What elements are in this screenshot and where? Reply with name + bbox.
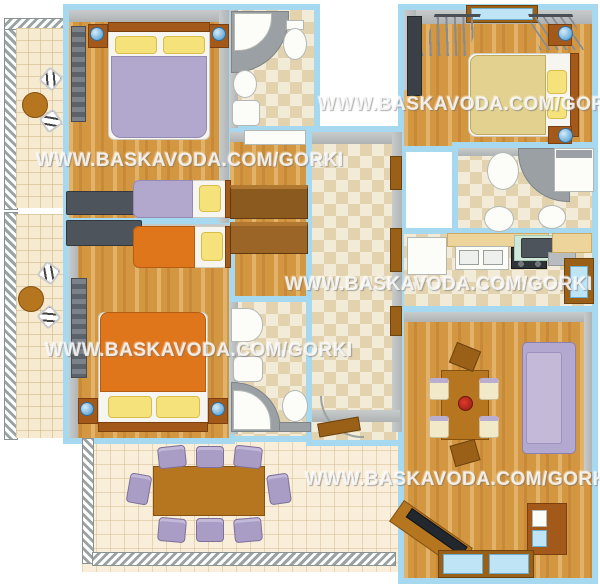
terrace-chair [233, 517, 263, 543]
terrace-railing-left [82, 438, 94, 564]
door [390, 156, 402, 190]
bed-blanket [111, 56, 207, 138]
toilet [282, 390, 308, 422]
terrace-chair [157, 517, 187, 543]
apartment-floor-plan: WWW.BASKAVODA.COM/GORKI WWW.BASKAVODA.CO… [0, 0, 600, 587]
dining-chair [429, 378, 449, 400]
toilet [283, 28, 307, 60]
sink-basin [459, 250, 479, 265]
terrace-chair [157, 445, 187, 470]
bedside-lamp [211, 402, 225, 416]
watermark: WWW.BASKAVODA.COM/GORKI [36, 150, 344, 172]
kitchen-cabinet [552, 233, 592, 253]
sink [232, 100, 260, 126]
terrace-railing-bottom [92, 552, 396, 566]
wall-shading [584, 312, 592, 472]
sofa-seat [526, 352, 562, 444]
pillow [199, 185, 221, 212]
terrace-dining-table [153, 466, 265, 516]
desk [66, 220, 142, 246]
terrace-chair [196, 518, 224, 542]
bed-headboard [108, 22, 210, 32]
wall-shading [404, 312, 592, 322]
pillow [163, 36, 205, 54]
pillow [115, 36, 157, 54]
pillow [547, 70, 567, 94]
terrace-chair [266, 473, 292, 506]
living-window-glass [489, 554, 529, 574]
watermark: WWW.BASKAVODA.COM/GORKI [285, 274, 593, 296]
pillow [108, 396, 152, 418]
toilet [484, 206, 514, 232]
wardrobe [71, 26, 86, 122]
watermark: WWW.BASKAVODA.COM/GORKI [305, 469, 600, 491]
bedside-lamp [90, 27, 104, 41]
living-window-glass [443, 554, 483, 574]
bedside-lamp [558, 128, 573, 143]
wardrobe [230, 222, 308, 254]
dining-chair [429, 416, 449, 438]
wall-shading [312, 132, 400, 144]
terrace-chair [233, 445, 263, 470]
bidet [538, 205, 566, 229]
balcony-mid-left-floor [16, 214, 66, 438]
refrigerator [407, 237, 447, 275]
desk [66, 191, 142, 215]
wall-shading [69, 10, 229, 22]
pillow [201, 232, 223, 261]
bed-blanket [133, 226, 195, 268]
sink [231, 308, 263, 342]
bedside-lamp [212, 27, 226, 41]
watermark: WWW.BASKAVODA.COM/GORKI [45, 340, 353, 362]
bidet [233, 70, 257, 98]
bedside-lamp [558, 26, 573, 41]
bedside-lamp [80, 402, 94, 416]
door [390, 306, 402, 336]
watermark: WWW.BASKAVODA.COM/GORKI [318, 94, 600, 116]
balcony-round-table [18, 286, 44, 312]
sink-basin [483, 250, 503, 265]
flower-centerpiece [458, 396, 473, 411]
dining-chair [479, 416, 499, 438]
cabinet-shelf [532, 530, 547, 547]
bed-blanket [133, 180, 193, 218]
wardrobe [230, 185, 308, 219]
dining-chair [479, 378, 499, 400]
washing-machine-panel [556, 150, 592, 158]
door [390, 228, 402, 272]
bed-headboard [98, 422, 208, 432]
cabinet-shelf [532, 510, 547, 527]
pillow [156, 396, 200, 418]
toilet-tank [279, 422, 311, 432]
shelf [244, 130, 306, 145]
wardrobe [407, 16, 422, 96]
sink [487, 152, 519, 190]
terrace-chair [196, 446, 224, 468]
wardrobe [71, 278, 87, 378]
